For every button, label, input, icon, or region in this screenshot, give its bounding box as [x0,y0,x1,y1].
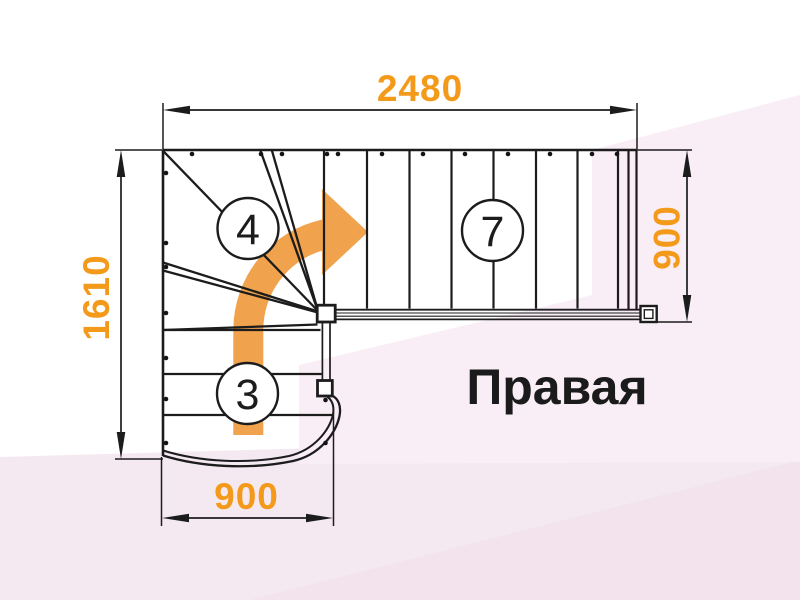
step-count-badge-lower: 3 [217,363,278,424]
step-count-badge-winder: 4 [218,198,279,259]
newel-post-bottom [318,381,333,397]
dimension-right-label: 900 [647,205,688,270]
dimension-bottom-label: 900 [214,476,279,517]
stair-plan-page: 4 7 3 2480 1610 [0,0,800,600]
upper-step-count: 7 [481,208,505,256]
newel-post-right-inner [644,310,653,319]
newel-post-center [317,305,335,322]
stair-type-label: Правая [466,359,647,415]
lower-step-count: 3 [236,371,260,419]
dimension-left-label: 1610 [76,254,117,340]
step-count-badge-upper: 7 [462,200,523,261]
dimension-top-label: 2480 [377,68,463,109]
stair-plan-diagram: 4 7 3 2480 1610 [0,0,800,600]
winder-step-count: 4 [236,206,260,254]
